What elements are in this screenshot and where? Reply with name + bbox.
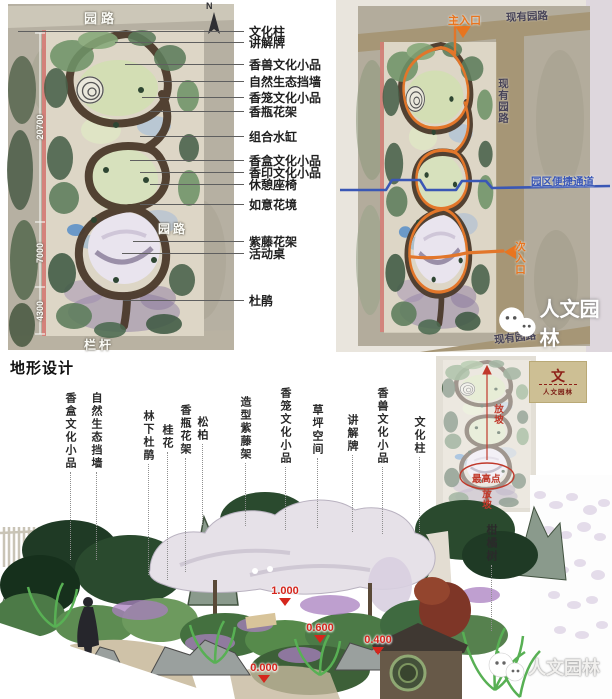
terrain-label-box-feature: 香盒文化小品 [62, 392, 78, 560]
callout-azalea: 杜鹃 [123, 293, 273, 307]
wechat-icon [496, 303, 538, 341]
secondary-entrance-label: 次入口 [513, 241, 528, 276]
callout-ruyi-border: 如意花境 [140, 197, 297, 211]
slope-top-label: 放坡 [490, 404, 504, 425]
callout-rest-bench: 休憩座椅 [150, 177, 297, 191]
callout-water-vats: 组合水缸 [140, 129, 297, 143]
dimension-4300: 4300 [35, 291, 45, 331]
terrain-label-sign-board: 讲解牌 [344, 414, 360, 532]
elevation-0400: 0.400 [360, 634, 396, 655]
slope-bottom-label: 放坡 [478, 489, 492, 510]
callout-sign-board: 讲解牌 [115, 35, 285, 49]
highest-point-label: 最高点 [472, 471, 501, 485]
terrain-label-beast-feature: 香兽文化小品 [374, 387, 390, 534]
elevation-arrow [372, 647, 384, 655]
elevation-1000: 1.000 [267, 585, 303, 606]
terrain-label-lawn-space: 草坪空间 [309, 404, 325, 528]
terrain-label-culture-column: 文化柱 [411, 416, 427, 532]
wechat-icon [486, 650, 526, 684]
terrain-label-cage-feature: 香笼文化小品 [277, 387, 293, 530]
callout-eco-wall: 自然生态挡墙 [158, 74, 321, 88]
north-label: N [206, 1, 213, 11]
terrain-label-osmanthus: 桂花 [159, 424, 175, 580]
design-sheet: 园路 园路 栏杆 N 20700 7000 4300 文化柱 讲解牌 香兽文化小… [0, 0, 612, 699]
logo-name: 人文园林 [543, 386, 573, 396]
terrain-label-eco-wall: 自然生态挡墙 [88, 392, 104, 560]
shortcut-channel-label: 园区便捷通道 [531, 174, 594, 189]
elevation-arrow [314, 635, 326, 643]
callout-vase-trellis: 香瓶花架 [150, 104, 297, 118]
elevation-0600: 0.600 [302, 622, 338, 643]
existing-road-right-label: 现有园路 [496, 78, 511, 124]
dimension-20700: 20700 [35, 107, 45, 147]
logo-divider [539, 384, 577, 385]
existing-road-top-label: 现有园路 [506, 8, 549, 25]
elevation-0000: 0.000 [246, 662, 282, 683]
terrain-label-understory-azalea: 林下杜鹃 [140, 410, 156, 575]
callout-activity-table: 活动桌 [122, 246, 285, 260]
terrain-label-pine-cypress: 松柏 [194, 416, 210, 525]
callout-beast-feature: 香兽文化小品 [125, 57, 321, 71]
terrain-label-citrus-tree: 柑橘树 [483, 524, 499, 631]
main-entrance-label: 主入口 [448, 12, 481, 28]
railing-label: 栏杆 [84, 336, 114, 353]
terrain-label-shaped-wisteria: 造型紫藤架 [237, 396, 253, 526]
watermark-bottom: 人文园林 [486, 650, 600, 684]
dimension-7000: 7000 [35, 233, 45, 273]
watermark-top: 人文园林 [496, 293, 612, 351]
elevation-arrow [258, 675, 270, 683]
terrain-label-vase-trellis: 香瓶花架 [177, 404, 193, 572]
section-title: 地形设计 [10, 357, 74, 378]
company-logo: 文 人文园林 [529, 361, 587, 403]
elevation-arrow [279, 598, 291, 606]
logo-symbol: 文 [551, 369, 565, 383]
